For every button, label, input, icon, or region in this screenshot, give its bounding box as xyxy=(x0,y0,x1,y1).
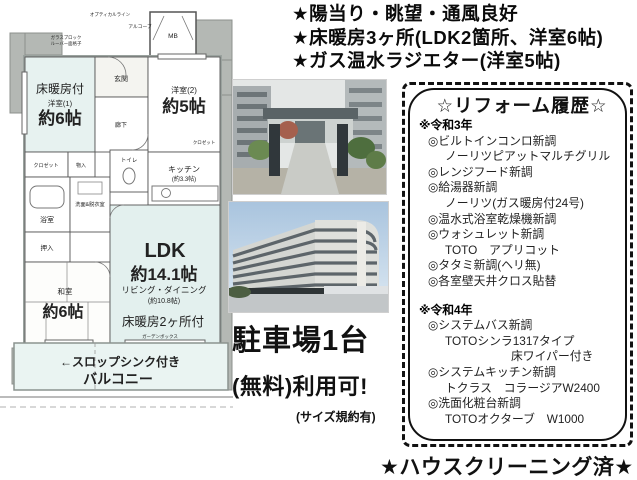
mb-label: MB xyxy=(168,33,178,40)
reform-spacer xyxy=(419,290,625,303)
reform-item: ◎レンジフード新調 xyxy=(419,165,625,181)
house-cleaning-note: ★ハウスクリーニング済★ xyxy=(380,451,634,480)
reform-item: ◎給湯器新調 xyxy=(419,180,625,196)
reform-history-inner: ☆リフォーム履歴☆ ※令和3年 ◎ビルトインコンロ新調 ノーリツピアットマルチグ… xyxy=(408,88,627,441)
floor-heat2-label: 床暖房2ヶ所付 xyxy=(122,314,204,329)
photo1-entrance-roof xyxy=(263,108,358,119)
reform-item: ◎ウォシュレット新調 xyxy=(419,227,625,243)
parking-line1: 駐車場1台 xyxy=(232,317,407,359)
alcove-label: アルコーブ xyxy=(128,23,152,30)
photo1-right-pillar xyxy=(337,124,348,176)
entrance-label: 玄関 xyxy=(114,74,128,83)
western2-size-label: 約5帖 xyxy=(162,96,205,116)
building-photo xyxy=(229,202,388,312)
toilet-fixture xyxy=(123,168,135,184)
photo1-left-bush xyxy=(248,140,272,160)
reform-item-detail: ノーリツピアットマルチグリル xyxy=(419,149,625,165)
japanese-size-label: 約6帖 xyxy=(43,302,84,321)
flyer-canvas: オプティカルライン アルコーブ ガラスブロック ルーバー面格子 MB 床暖房付 … xyxy=(0,0,637,480)
parking-line3: (サイズ規約有) xyxy=(296,408,407,425)
photo2-corner-facade xyxy=(357,222,366,292)
bathtub xyxy=(30,186,64,208)
ldk-size-label: 約14.1帖 xyxy=(130,264,197,284)
reform-year-r4: ※令和4年 xyxy=(419,303,625,319)
optical-line-label: オプティカルライン xyxy=(90,12,131,18)
reform-year-r3: ※令和3年 xyxy=(419,118,625,134)
reform-item-detail: TOTOオクターブ W1000 xyxy=(419,412,625,428)
photo1-entrance-glass xyxy=(295,121,325,143)
balcony-label: バルコニー xyxy=(83,371,153,387)
reform-item-detail: TOTO アプリコット xyxy=(419,243,625,259)
louver-label: ルーバー面格子 xyxy=(51,40,82,47)
reform-item: ◎システムキッチン新調 xyxy=(419,365,625,381)
photo1-red-tree xyxy=(278,121,298,139)
reform-item: ◎温水式浴室乾燥機新調 xyxy=(419,212,625,228)
feature-bullets: ★陽当り・眺望・通風良好 ★床暖房3ヶ所(LDK2箇所、洋室6帖) ★ガス温水ラ… xyxy=(292,2,603,73)
photo2-ground xyxy=(229,294,388,312)
ldk-label: LDK xyxy=(144,240,186,262)
entrance-photo xyxy=(233,80,386,194)
reform-item: ◎洗面化粧台新調 xyxy=(419,396,625,412)
reform-item: ◎各室壁天井クロス貼替 xyxy=(419,274,625,290)
washroom-label: 洗面&脱衣室 xyxy=(75,200,104,208)
slop-sink-label: ←スロップシンク付き xyxy=(60,354,180,369)
reform-item: ◎ビルトインコンロ新調 xyxy=(419,134,625,150)
western1-size-label: 約6帖 xyxy=(38,108,81,128)
reform-item-detail: トクラス コラージアW2400 xyxy=(419,381,625,397)
reform-history-box: ☆リフォーム履歴☆ ※令和3年 ◎ビルトインコンロ新調 ノーリツピアットマルチグ… xyxy=(402,82,633,447)
closet2-label: クロゼット xyxy=(193,139,216,146)
western2-label: 洋室(2) xyxy=(171,85,197,95)
parking-note: 駐車場1台 (無料)利用可! (サイズ規約有) xyxy=(232,317,407,425)
kitchen-size-label: (約3.3帖) xyxy=(172,175,196,183)
feature-line-3: ★ガス温水ラジエター(洋室5帖) xyxy=(292,49,603,73)
kitchen-sink xyxy=(162,189,171,198)
western1-label: 洋室(1) xyxy=(48,98,73,108)
reform-item-detail: ノーリツ(ガス暖房付24号) xyxy=(419,196,625,212)
bath-label: 浴室 xyxy=(40,215,54,224)
garden-box-label: ガーデンボックス xyxy=(142,333,178,340)
reform-item-detail: TOTOシンラ1317タイプ xyxy=(419,334,625,350)
room-japanese xyxy=(25,262,110,343)
kitchen-label: キッチン xyxy=(168,165,200,174)
glass-block-label: ガラスブロック xyxy=(51,34,82,41)
oshiire-label: 押入 xyxy=(41,243,55,252)
floorplan-drawing: オプティカルライン アルコーブ ガラスブロック ルーバー面格子 MB 床暖房付 … xyxy=(0,0,233,480)
living-size-label: (約10.8帖) xyxy=(148,296,180,305)
feature-line-2: ★床暖房3ヶ所(LDK2箇所、洋室6帖) xyxy=(292,26,603,50)
parking-line2: (無料)利用可! xyxy=(232,369,407,401)
photo1-right-bush2 xyxy=(366,151,386,169)
reform-item-detail: 床ワイパー付き xyxy=(419,349,625,365)
wash-basin xyxy=(78,182,102,194)
feature-line-1: ★陽当り・眺望・通風良好 xyxy=(292,2,603,26)
toilet-label: トイレ xyxy=(121,158,138,164)
japanese-label: 和室 xyxy=(58,286,73,296)
storage-label: 物入 xyxy=(76,162,86,169)
photo2-fence-white xyxy=(324,286,388,294)
reform-item: ◎タタミ新調(ヘリ無) xyxy=(419,258,625,274)
reform-title: ☆リフォーム履歴☆ xyxy=(419,92,625,118)
hall-label: 廊下 xyxy=(115,121,127,129)
reform-item: ◎システムバス新調 xyxy=(419,318,625,334)
closet1-label: クロゼット xyxy=(33,162,58,169)
living-label: リビング・ダイニング xyxy=(121,285,207,295)
photo1-left-pillar xyxy=(269,124,280,176)
heated-tag-label: 床暖房付 xyxy=(36,81,84,96)
